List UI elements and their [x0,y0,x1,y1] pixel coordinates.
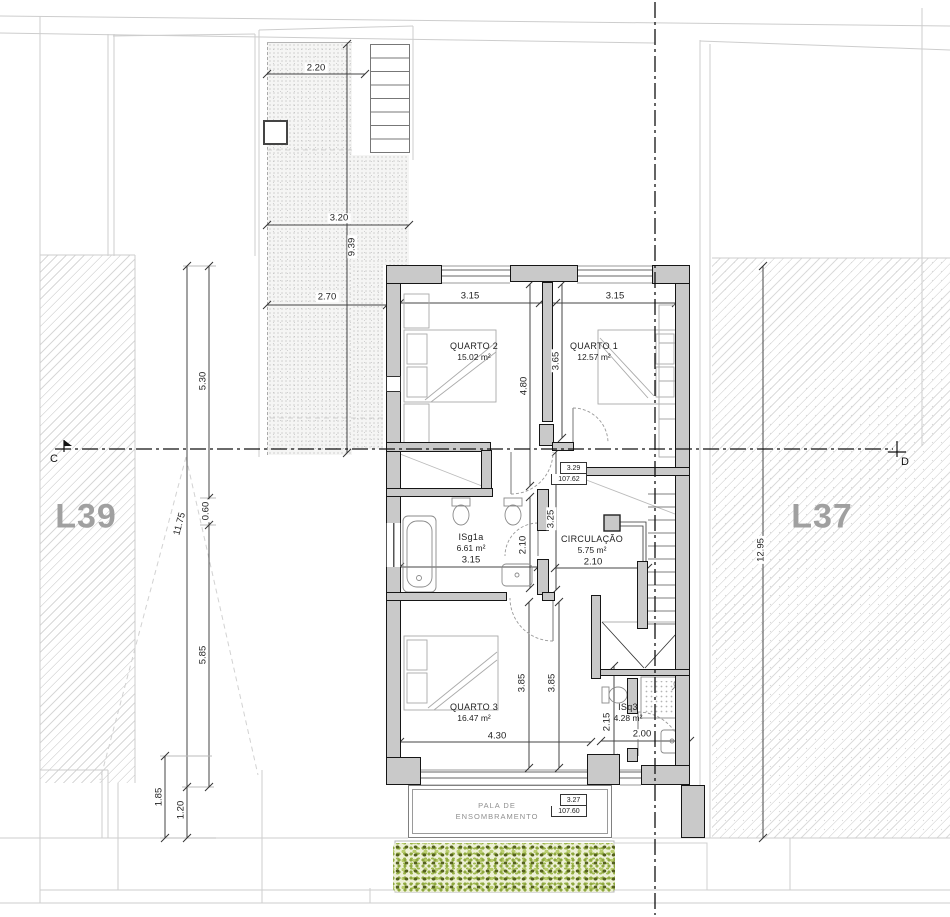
dim-q3-width: 4.30 [486,731,509,741]
dim-west-total: 11.75 [172,510,188,539]
dim-west-upper: 5.30 [198,370,208,393]
room-label-quarto1: QUARTO 112.57 m² [570,341,618,363]
lot-label-l37: L37 [791,498,853,537]
wall-segment [386,265,442,284]
room-label-isg1a: ISg1a6.61 m² [457,532,486,554]
wall-segment [652,265,690,284]
dim-q1-width: 3.15 [604,291,627,301]
dim-q1-depth: 3.65 [551,350,561,373]
level-absolute: 107.60 [551,806,587,817]
section-marker-c: C [50,453,58,465]
wall-segment [552,442,574,451]
dim-q3-depth-a: 3.85 [517,672,527,695]
wall-segment [627,748,638,762]
level-relative: 3.29 [560,462,587,474]
door-arcs-group [505,408,682,756]
window [386,523,401,567]
exterior-stair-ladder [370,44,410,153]
dim-q2-depth: 4.80 [519,375,529,398]
dim-isg1a-width: 3.15 [460,555,483,565]
floor-plan: PALA DE ENSOMBRAMENTO 3.29 107.62 3.27 1… [0,0,950,917]
level-marker-hall: 3.29 107.62 [551,462,587,485]
wall-opening [386,376,401,392]
room-label-quarto3: QUARTO 316.47 m² [450,702,498,724]
dim-west-lower: 5.85 [198,644,208,667]
level-absolute: 107.62 [551,474,587,485]
wall-segment [510,265,578,282]
section-marker-d: D [901,456,909,468]
dim-hall-depth: 3.25 [546,508,556,531]
canopy-label: PALA DE ENSOMBRAMENTO [456,800,539,823]
lot-l37-hatch [712,258,950,838]
wall-segment [386,592,507,601]
dim-isg1a-depth: 2.10 [518,534,528,557]
dim-isq3-depth: 2.15 [602,711,612,734]
dim-isq3-width: 2.00 [631,729,654,739]
vegetation-hedge [393,843,615,892]
patio-area [352,265,383,449]
level-marker-canopy: 3.27 107.60 [551,794,587,817]
wall-segment [386,488,493,497]
room-label-quarto2: QUARTO 215.02 m² [450,341,498,363]
dim-circ-width: 2.10 [582,557,605,567]
room-label-isq3: ISq34.28 m² [614,702,643,724]
patio-hatch-box [263,120,288,145]
dim-q2-width: 3.15 [459,291,482,301]
wall-segment [542,592,555,601]
wall-segment [587,754,620,785]
wall-segment [675,265,690,785]
lot-label-l39: L39 [55,498,117,537]
dim-patio-mid: 3.20 [328,213,351,223]
dim-patio-low: 2.70 [316,292,339,302]
dim-patio-length: 9.39 [347,236,357,259]
wall-segment [574,467,690,476]
wall-segment [481,450,492,490]
dim-patio-top: 2.20 [305,63,328,73]
patio-area [352,155,409,265]
dim-east-total: 12.95 [756,536,766,564]
wall-segment [386,442,491,452]
dim-sw-depth: 1.85 [154,786,164,809]
wall-segment [591,595,601,679]
level-relative: 3.27 [560,794,587,806]
room-label-circulacao: CIRCULAÇÃO5.75 m² [561,534,623,556]
dim-sw-canopy: 1.20 [176,799,186,822]
dim-q3-depth-b: 3.85 [547,672,557,695]
patio-area [267,42,352,455]
dim-west-step: 0.60 [201,500,211,523]
wall-segment [537,559,549,595]
wall-segment [386,757,421,785]
wall-segment [641,765,690,785]
wall-segment [637,561,648,629]
wall-segment [600,669,690,676]
wall-segment [681,785,705,838]
